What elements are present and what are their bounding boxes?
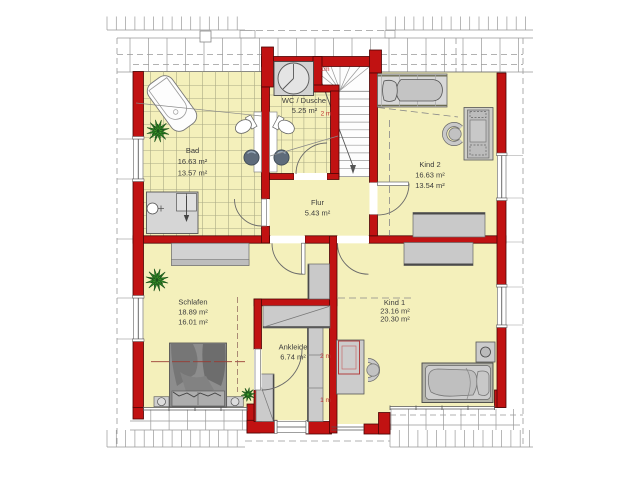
svg-text:WC / Dusche: WC / Dusche <box>282 96 326 105</box>
svg-text:13.57 m²: 13.57 m² <box>178 169 208 178</box>
svg-text:16.63 m²: 16.63 m² <box>415 171 445 180</box>
svg-text:6.74 m²: 6.74 m² <box>280 353 306 362</box>
svg-text:20.30 m²: 20.30 m² <box>380 315 410 324</box>
svg-text:18.89 m²: 18.89 m² <box>178 308 208 317</box>
svg-text:Schlafen: Schlafen <box>178 298 207 307</box>
svg-text:2 m: 2 m <box>321 111 332 118</box>
svg-text:2 m: 2 m <box>320 353 331 360</box>
svg-text:16.63 m²: 16.63 m² <box>178 157 208 166</box>
svg-text:13.54 m²: 13.54 m² <box>415 181 445 190</box>
svg-text:Kind 2: Kind 2 <box>419 160 440 169</box>
svg-text:1 m: 1 m <box>320 397 331 404</box>
svg-text:Ankleide: Ankleide <box>279 343 308 352</box>
svg-text:5.25 m²: 5.25 m² <box>292 106 318 115</box>
svg-text:Bad: Bad <box>186 146 199 155</box>
svg-text:1m: 1m <box>320 66 329 73</box>
svg-text:Flur: Flur <box>311 198 324 207</box>
svg-text:16.01 m²: 16.01 m² <box>178 318 208 327</box>
svg-text:5.43 m²: 5.43 m² <box>305 209 331 218</box>
